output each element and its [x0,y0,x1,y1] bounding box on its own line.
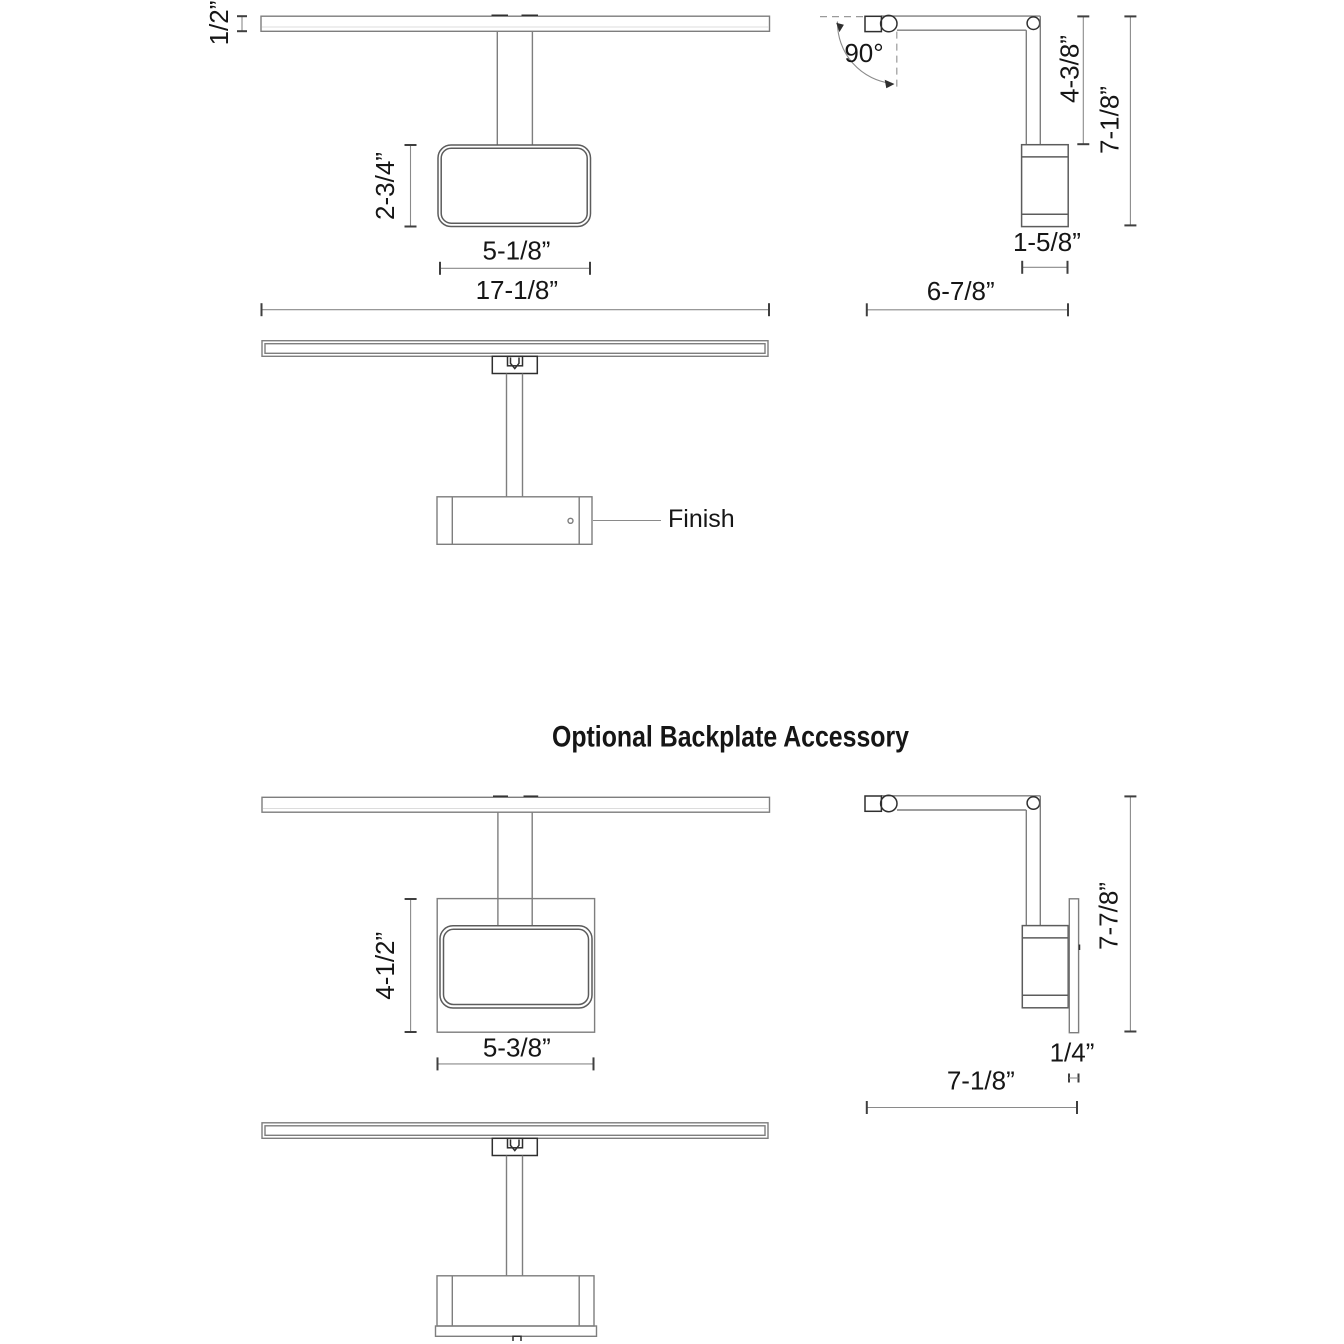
svg-text:5-1/8”: 5-1/8” [483,236,551,266]
svg-text:7-7/8”: 7-7/8” [1094,882,1124,950]
svg-text:7-1/8”: 7-1/8” [1095,86,1125,154]
svg-text:Finish: Finish [668,505,735,533]
svg-text:1/2”: 1/2” [204,1,234,46]
svg-text:6-7/8”: 6-7/8” [927,276,995,306]
svg-text:4-3/8”: 4-3/8” [1055,35,1085,103]
svg-text:Optional Backplate Accessory: Optional Backplate Accessory [552,721,909,754]
svg-text:5-3/8”: 5-3/8” [483,1033,551,1063]
svg-text:7-1/8”: 7-1/8” [947,1066,1015,1096]
svg-text:90°: 90° [844,38,883,68]
svg-text:2-3/4”: 2-3/4” [370,152,400,220]
svg-text:1-5/8”: 1-5/8” [1013,227,1081,257]
svg-text:1/4”: 1/4” [1050,1037,1095,1067]
svg-text:17-1/8”: 17-1/8” [476,275,558,305]
svg-text:4-1/2”: 4-1/2” [370,932,400,1000]
